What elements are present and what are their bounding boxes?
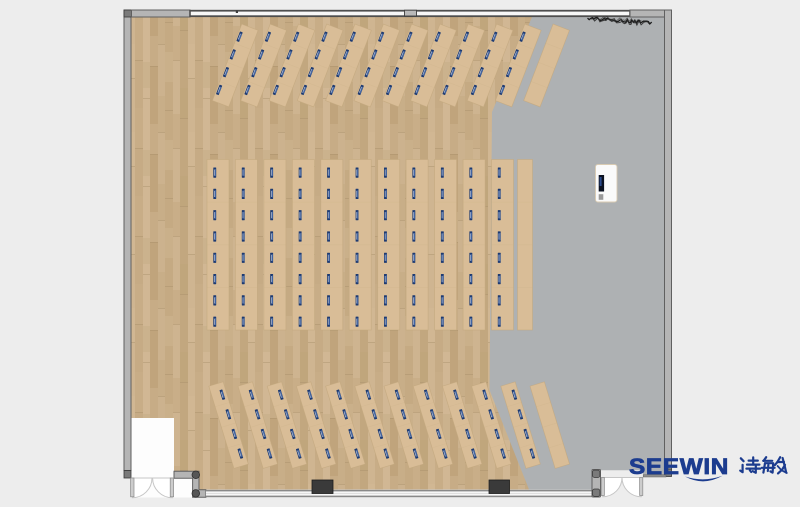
svg-text:SEEWIN: SEEWIN (629, 454, 729, 479)
